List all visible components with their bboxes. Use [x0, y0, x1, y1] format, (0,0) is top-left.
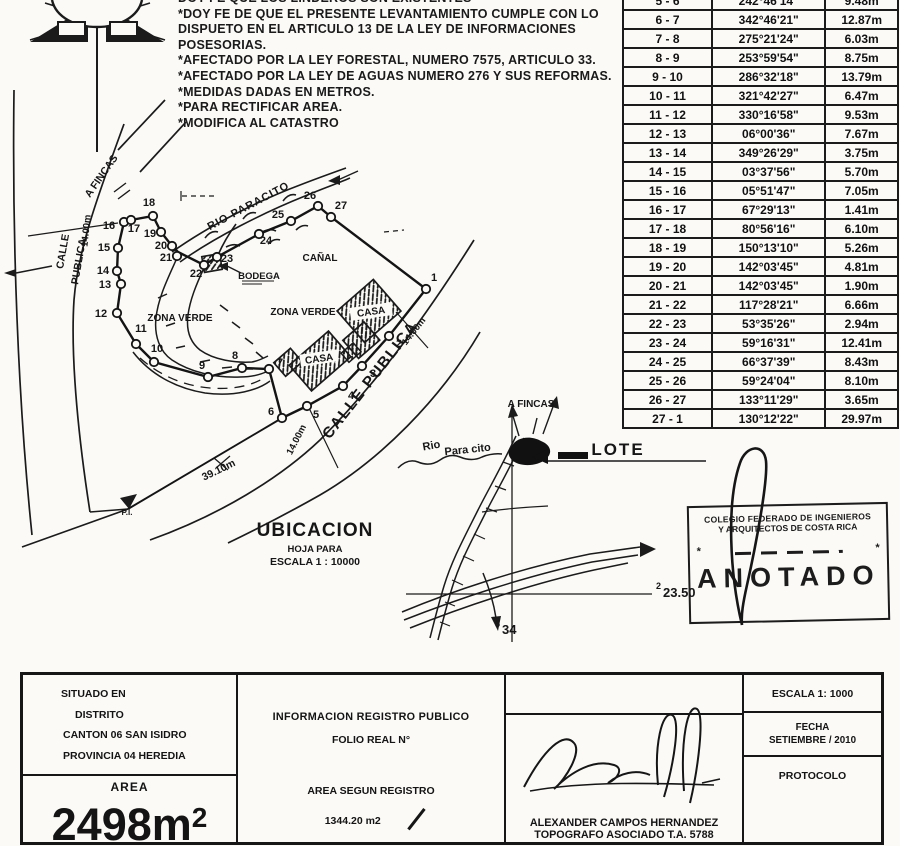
- registro-panel: INFORMACION REGISTRO PUBLICO FOLIO REAL …: [238, 675, 506, 842]
- vertex-number: 23: [221, 253, 233, 265]
- bearing-row: 25 - 2659°24'04"8.10m: [623, 371, 898, 390]
- info-grid: SITUADO EN DISTRITO CANTON 06 SAN ISIDRO…: [20, 672, 884, 845]
- bearing-row: 8 - 9253°59'54"8.75m: [623, 48, 898, 67]
- vertex-number: 11: [135, 323, 147, 335]
- vertex-marker: [278, 414, 286, 422]
- vertex-marker: [238, 364, 246, 372]
- vertex-marker: [314, 202, 322, 210]
- bearing-row: 10 - 11321°42'27"6.47m: [623, 86, 898, 105]
- east-arrowhead: [640, 542, 656, 557]
- vertex-number: 13: [99, 279, 111, 291]
- north-arrow: [30, 0, 165, 152]
- coord-east-sup: 2: [656, 581, 661, 591]
- vertex-marker: [150, 358, 158, 366]
- pi-label: P.I.: [122, 508, 133, 517]
- ubicacion-title: UBICACION: [240, 520, 390, 542]
- vertex-number: 17: [128, 223, 140, 235]
- vertex-number: 14: [97, 265, 110, 277]
- bearing-row: 24 - 2566°37'39"8.43m: [623, 352, 898, 371]
- stamp-star-right: *: [875, 542, 880, 554]
- river: [172, 168, 404, 262]
- fecha: FECHA SETIEMBRE / 2010: [744, 713, 881, 757]
- vertex-number: 6: [268, 406, 274, 418]
- meta-panel: ESCALA 1: 1000 FECHA SETIEMBRE / 2010 PR…: [744, 675, 881, 842]
- sketch-a-fincas: A FINCAS: [508, 399, 555, 410]
- vertex-marker: [204, 373, 212, 381]
- vertex-marker: [168, 242, 176, 250]
- vertex-marker: [265, 365, 273, 373]
- ubicacion-block: UBICACION HOJA PARA ESCALA 1 : 10000: [240, 520, 390, 568]
- area-label: AREA: [23, 780, 236, 794]
- vertex-marker: [327, 213, 335, 221]
- bearing-row: 12 - 1306°00'36"7.67m: [623, 124, 898, 143]
- surveyor-name-block: ALEXANDER CAMPOS HERNANDEZ TOPOGRAFO ASO…: [506, 818, 742, 841]
- vertex-number: 26: [304, 190, 316, 202]
- ubicacion-line2: HOJA PARA: [240, 544, 390, 555]
- vertex-marker: [339, 382, 347, 390]
- vertex-number: 25: [272, 209, 284, 221]
- bodega-label: BODEGA: [238, 271, 280, 282]
- location-lines: SITUADO EN DISTRITO CANTON 06 SAN ISIDRO…: [23, 675, 236, 776]
- vertex-number: 15: [98, 242, 110, 254]
- vertex-marker: [422, 285, 430, 293]
- vertex-number: 10: [151, 343, 163, 355]
- provincia: PROVINCIA 04 HEREDIA: [23, 746, 236, 767]
- signature-panel: ALEXANDER CAMPOS HERNANDEZ TOPOGRAFO ASO…: [506, 675, 744, 842]
- surveyor-title: TOPOGRAFO ASOCIADO T.A. 5788: [506, 830, 742, 842]
- fecha-label: FECHA: [744, 721, 881, 734]
- vertex-marker: [149, 212, 157, 220]
- vertex-number: 9: [199, 360, 205, 372]
- vertex-number: 22: [190, 268, 202, 280]
- stamp-star-left: *: [697, 546, 702, 558]
- surveyor-name: ALEXANDER CAMPOS HERNANDEZ: [506, 818, 742, 830]
- dim-14-bottom: 14.00m: [285, 423, 309, 457]
- vertex-number: 16: [103, 220, 115, 232]
- boundary-to-pi: [128, 418, 282, 509]
- vertex-marker: [113, 309, 121, 317]
- vertex-number: 2: [396, 338, 402, 350]
- vertex-marker: [303, 402, 311, 410]
- info-registro: INFORMACION REGISTRO PUBLICO: [238, 711, 504, 723]
- coord-north-sup: 5: [495, 619, 500, 629]
- bearing-row: 19 - 20142°03'45"4.81m: [623, 257, 898, 276]
- vertex-marker: [114, 244, 122, 252]
- vertex-number: 19: [144, 228, 156, 240]
- situado-en: SITUADO EN: [23, 684, 236, 705]
- ubicacion-line3: ESCALA 1 : 10000: [240, 556, 390, 568]
- location-panel: SITUADO EN DISTRITO CANTON 06 SAN ISIDRO…: [23, 675, 238, 842]
- bearing-row: 5 - 6242°46'14"9.48m: [623, 0, 898, 10]
- folio-real: FOLIO REAL N°: [238, 734, 504, 746]
- bearing-row: 17 - 1880°56'16"6.10m: [623, 219, 898, 238]
- a-fincas-label: A FINCAS: [83, 153, 121, 200]
- bearing-row: 9 - 10286°32'18"13.79m: [623, 67, 898, 86]
- sketch-highway-2: [404, 555, 638, 620]
- bearing-row: 7 - 8275°21'24"6.03m: [623, 29, 898, 48]
- calle-publica-left-1: CALLE: [54, 233, 72, 270]
- sketch-road-2: [438, 438, 524, 640]
- bearing-row: 6 - 7342°46'21"12.87m: [623, 10, 898, 29]
- vertex-number: 3: [370, 368, 376, 380]
- bearing-row: 13 - 14349°26'29"3.75m: [623, 143, 898, 162]
- location-sketch: A FINCAS Rio Para cito LOTE 2 23.50 5 34: [390, 390, 710, 655]
- survey-plan-page: DOY FE QUE LOS LINDEROS SON EXISTENTES *…: [0, 0, 900, 846]
- vertex-number: 21: [160, 252, 172, 264]
- dim-14-left: 14.00m: [79, 214, 93, 247]
- vertex-number: 7: [277, 357, 283, 369]
- vertex-number: 24: [260, 235, 273, 247]
- bearing-row: 23 - 2459°16'31"12.41m: [623, 333, 898, 352]
- bearings-tbody: 5 - 6242°46'14"9.48m6 - 7342°46'21"12.87…: [623, 0, 898, 428]
- lote-label: LOTE: [591, 440, 644, 459]
- area-registro-label: AREA SEGUN REGISTRO: [238, 785, 504, 797]
- surveyor-signature: [506, 687, 742, 807]
- protocolo: PROTOCOLO: [744, 757, 881, 782]
- bearing-row: 18 - 19150°13'10"5.26m: [623, 238, 898, 257]
- stamp-scribble: [734, 549, 842, 554]
- dim-39: 39.10m: [200, 457, 237, 483]
- bearing-row: 22 - 2353°35'26"2.94m: [623, 314, 898, 333]
- vertex-number: 1: [431, 272, 437, 284]
- area-registro-value: 1344.20 m2: [238, 806, 504, 832]
- vertex-number: 4: [348, 390, 355, 402]
- canal-label: CAÑAL: [303, 251, 338, 264]
- zona-verde-left-label: ZONA VERDE: [147, 313, 213, 324]
- check-slash: [407, 808, 425, 830]
- lote-arrow-tail: [558, 452, 588, 459]
- vertex-marker: [358, 362, 366, 370]
- stamp-anotado: COLEGIO FEDERADO DE INGENIEROS Y ARQUITE…: [687, 502, 890, 624]
- vertex-marker: [287, 217, 295, 225]
- escala: ESCALA 1: 1000: [744, 675, 881, 713]
- vertex-marker: [117, 280, 125, 288]
- vertex-marker: [173, 252, 181, 260]
- bearing-row: 21 - 22117°28'21"6.66m: [623, 295, 898, 314]
- vertex-marker: [157, 228, 165, 236]
- zona-verde-right-label: ZONA VERDE: [270, 307, 336, 318]
- vertex-marker: [385, 332, 393, 340]
- vertex-number: 27: [335, 200, 347, 212]
- bearing-row: 11 - 12330°16'58"9.53m: [623, 105, 898, 124]
- vertex-marker: [132, 340, 140, 348]
- vertex-number: 5: [313, 409, 319, 421]
- canton: CANTON 06 SAN ISIDRO: [23, 725, 236, 746]
- area-value: 2498m2: [50, 794, 210, 846]
- vertex-number: 18: [143, 197, 155, 209]
- vertex-number: 20: [155, 240, 167, 252]
- bearing-row: 15 - 1605°51'47"7.05m: [623, 181, 898, 200]
- bearing-row: 20 - 21142°03'45"1.90m: [623, 276, 898, 295]
- sketch-rio: Rio: [422, 439, 442, 454]
- vertex-marker: [113, 267, 121, 275]
- coord-north: 34: [502, 622, 517, 637]
- distrito: DISTRITO: [23, 705, 236, 726]
- bearings-table: 5 - 6242°46'14"9.48m6 - 7342°46'21"12.87…: [622, 0, 899, 429]
- fecha-value: SETIEMBRE / 2010: [744, 734, 881, 747]
- southwest-road: [22, 494, 137, 547]
- stamp-word: ANOTADO: [690, 560, 888, 595]
- vertex-number: 8: [232, 350, 238, 362]
- vertex-number: 12: [95, 308, 107, 320]
- bearing-row: 14 - 1503°37'56"5.70m: [623, 162, 898, 181]
- bearing-row: 16 - 1767°29'13"1.41m: [623, 200, 898, 219]
